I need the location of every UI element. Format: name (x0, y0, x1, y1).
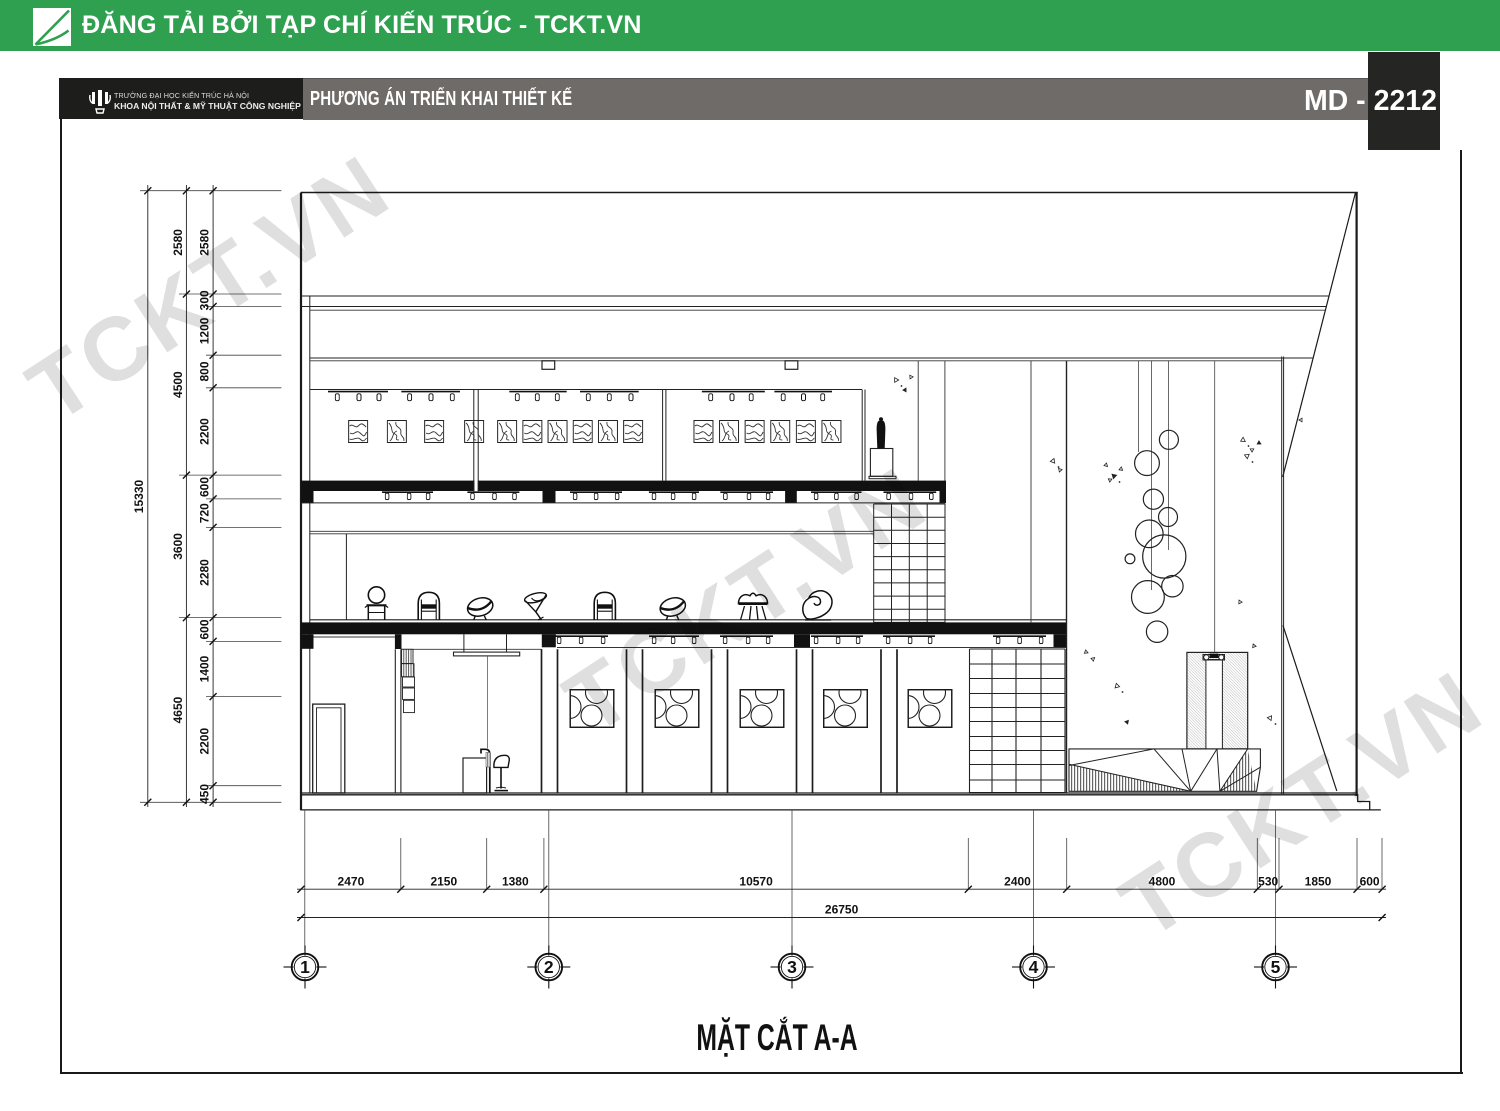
svg-text:1850: 1850 (1305, 875, 1332, 889)
svg-text:1: 1 (300, 957, 310, 977)
svg-text:600: 600 (1360, 875, 1380, 889)
svg-text:3600: 3600 (171, 533, 185, 560)
svg-text:4: 4 (1029, 957, 1039, 977)
svg-text:800: 800 (198, 361, 212, 381)
svg-text:2200: 2200 (198, 728, 212, 755)
svg-text:600: 600 (198, 619, 212, 639)
svg-text:2: 2 (544, 957, 554, 977)
svg-text:2280: 2280 (198, 559, 212, 586)
svg-text:600: 600 (198, 477, 212, 497)
svg-text:10570: 10570 (739, 875, 773, 889)
svg-text:450: 450 (198, 784, 212, 804)
svg-text:2200: 2200 (198, 418, 212, 445)
svg-text:MẶT CẮT A-A: MẶT CẮT A-A (696, 1016, 857, 1058)
svg-text:3: 3 (787, 957, 797, 977)
svg-text:720: 720 (198, 503, 212, 523)
svg-text:2470: 2470 (338, 875, 365, 889)
svg-text:15330: 15330 (132, 479, 146, 513)
svg-text:2400: 2400 (1004, 875, 1031, 889)
svg-text:2150: 2150 (430, 875, 457, 889)
svg-text:4650: 4650 (171, 696, 185, 723)
svg-text:5: 5 (1271, 957, 1281, 977)
svg-text:1400: 1400 (198, 655, 212, 682)
svg-text:26750: 26750 (825, 903, 859, 917)
svg-text:1380: 1380 (502, 875, 529, 889)
